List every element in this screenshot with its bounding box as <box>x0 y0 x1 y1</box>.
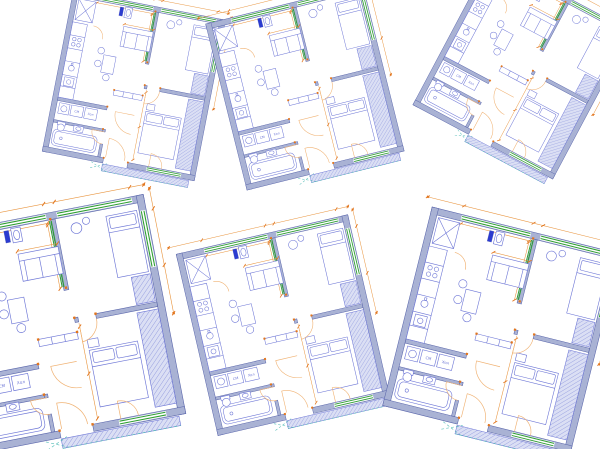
floor-plan-bottom-left <box>0 182 197 449</box>
floor-plans-scene: СМ Хол <box>0 0 600 449</box>
floor-plan-top-right <box>403 0 600 189</box>
floor-plan-top-left <box>34 0 233 190</box>
floor-plans-canvas: СМ Хол <box>0 0 600 449</box>
floor-plan-bottom-middle <box>167 204 399 446</box>
floor-plan-bottom-right <box>372 195 600 449</box>
floor-plan-top-middle <box>197 0 413 200</box>
